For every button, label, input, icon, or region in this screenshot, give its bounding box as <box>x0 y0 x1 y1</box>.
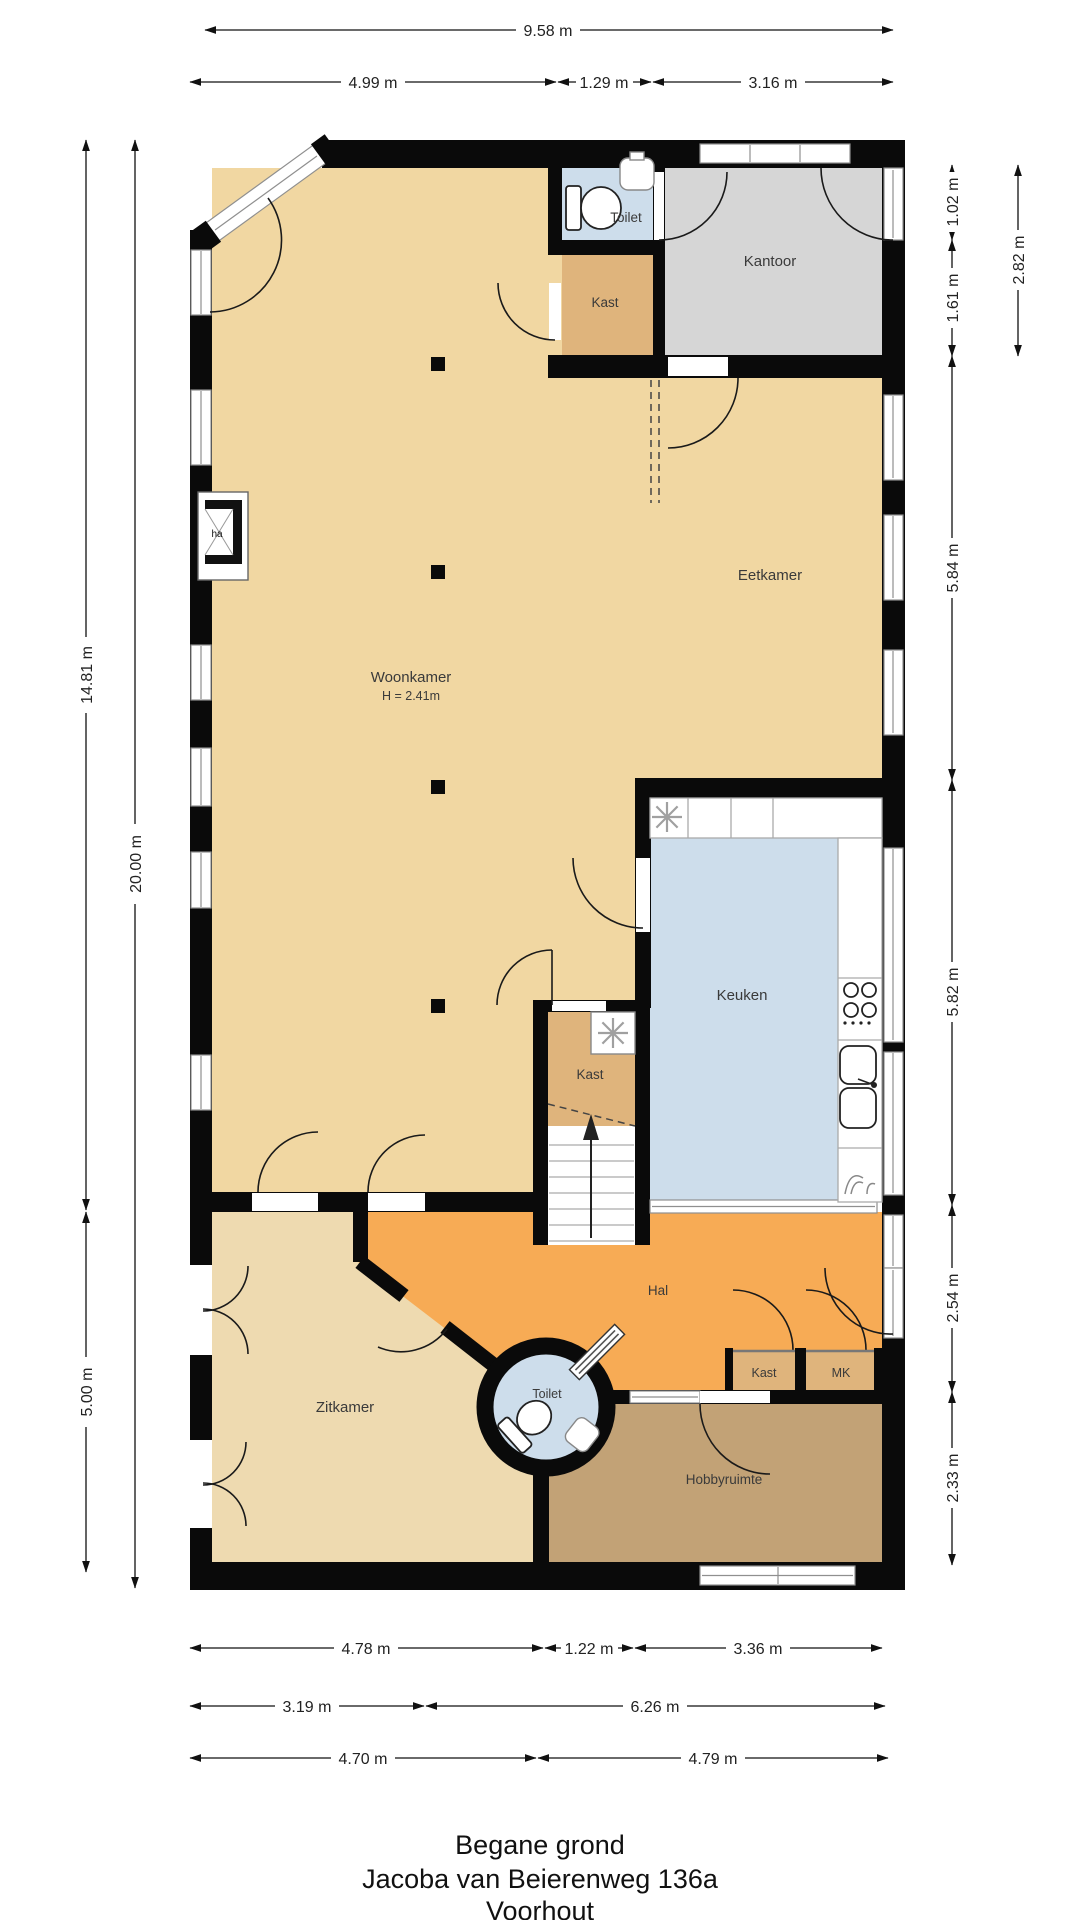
label-kast-hal: Kast <box>751 1366 777 1380</box>
label-kast-stairs: Kast <box>576 1067 603 1082</box>
dim-top-seg1: 4.99 m <box>349 75 398 92</box>
dim-b1-122: 1.22 m <box>565 1641 614 1658</box>
dim-top-total: 9.58 m <box>524 23 573 40</box>
floorplan-page: ha <box>0 0 1080 1920</box>
keuken-windows <box>884 848 903 1195</box>
floor-plan-canvas: ha <box>0 0 1080 1920</box>
dim-left-1481: 14.81 m <box>79 646 96 704</box>
vent-unit-icon <box>652 802 682 832</box>
label-fireplace: ha <box>211 529 223 540</box>
dim-right-233: 2.33 m <box>945 1454 962 1503</box>
dim-right-254: 2.54 m <box>945 1274 962 1323</box>
label-mk: MK <box>832 1366 851 1380</box>
dim-b1-336: 3.36 m <box>734 1641 783 1658</box>
dim-left-2000: 20.00 m <box>128 835 145 893</box>
dim-b3-479: 4.79 m <box>689 1751 738 1768</box>
dim-top-seg2: 1.29 m <box>580 75 629 92</box>
eetkamer-windows <box>884 395 903 735</box>
label-kast-top: Kast <box>591 295 618 310</box>
label-toilet-top: Toilet <box>610 210 642 225</box>
dim-right-102: 1.02 m <box>945 178 962 227</box>
dim-b2-626: 6.26 m <box>631 1699 680 1716</box>
label-woonkamer: Woonkamer <box>371 669 452 686</box>
label-zitkamer: Zitkamer <box>316 1399 374 1416</box>
dim-b3-470: 4.70 m <box>339 1751 388 1768</box>
title-address: Jacoba van Beierenweg 136a <box>362 1864 719 1894</box>
dim-top-seg3: 3.16 m <box>749 75 798 92</box>
dim-right-582: 5.82 m <box>945 968 962 1017</box>
dim-b1-478: 4.78 m <box>342 1641 391 1658</box>
label-hal: Hal <box>648 1283 668 1298</box>
label-eetkamer: Eetkamer <box>738 567 802 584</box>
dim-left-500: 5.00 m <box>79 1368 96 1417</box>
label-toilet-round: Toilet <box>532 1387 562 1401</box>
label-woonkamer-height: H = 2.41m <box>382 689 440 703</box>
dim-right-584: 5.84 m <box>945 544 962 593</box>
mv-unit-icon <box>598 1018 628 1048</box>
title-city: Voorhout <box>486 1896 595 1920</box>
dim-right-282: 2.82 m <box>1011 236 1028 285</box>
label-keuken: Keuken <box>717 987 768 1004</box>
fireplace: ha <box>198 492 248 580</box>
title-floor: Begane grond <box>455 1830 625 1860</box>
dim-b2-319: 3.19 m <box>283 1699 332 1716</box>
label-kantoor: Kantoor <box>744 253 797 270</box>
plan-title: Begane grond Jacoba van Beierenweg 136a … <box>362 1830 719 1920</box>
label-hobbyruimte: Hobbyruimte <box>686 1472 763 1487</box>
dim-right-161: 1.61 m <box>945 274 962 323</box>
